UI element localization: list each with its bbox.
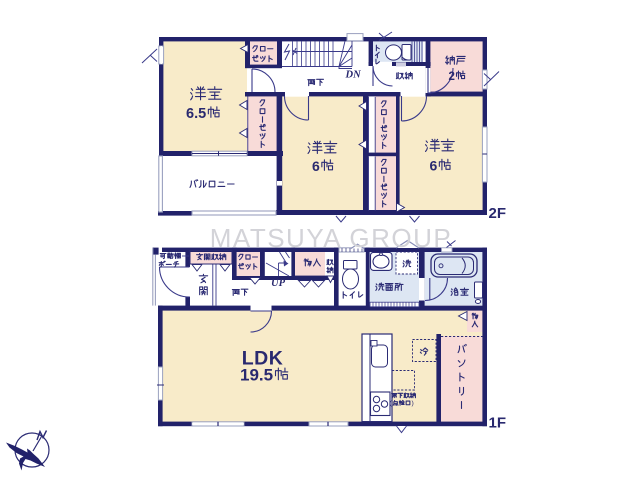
svg-text:6.5: 6.5 <box>186 106 206 122</box>
svg-text:2F: 2F <box>489 205 507 222</box>
svg-text:MATSUYA GROUP: MATSUYA GROUP <box>210 223 452 253</box>
svg-text:1F: 1F <box>489 415 507 432</box>
svg-text:DN: DN <box>345 70 362 81</box>
svg-text:): ) <box>412 400 414 407</box>
svg-text:6: 6 <box>312 158 320 174</box>
svg-text:2: 2 <box>449 71 455 83</box>
svg-text:19.5: 19.5 <box>240 366 273 385</box>
svg-text:UP: UP <box>271 278 286 289</box>
svg-text:6: 6 <box>430 158 438 174</box>
